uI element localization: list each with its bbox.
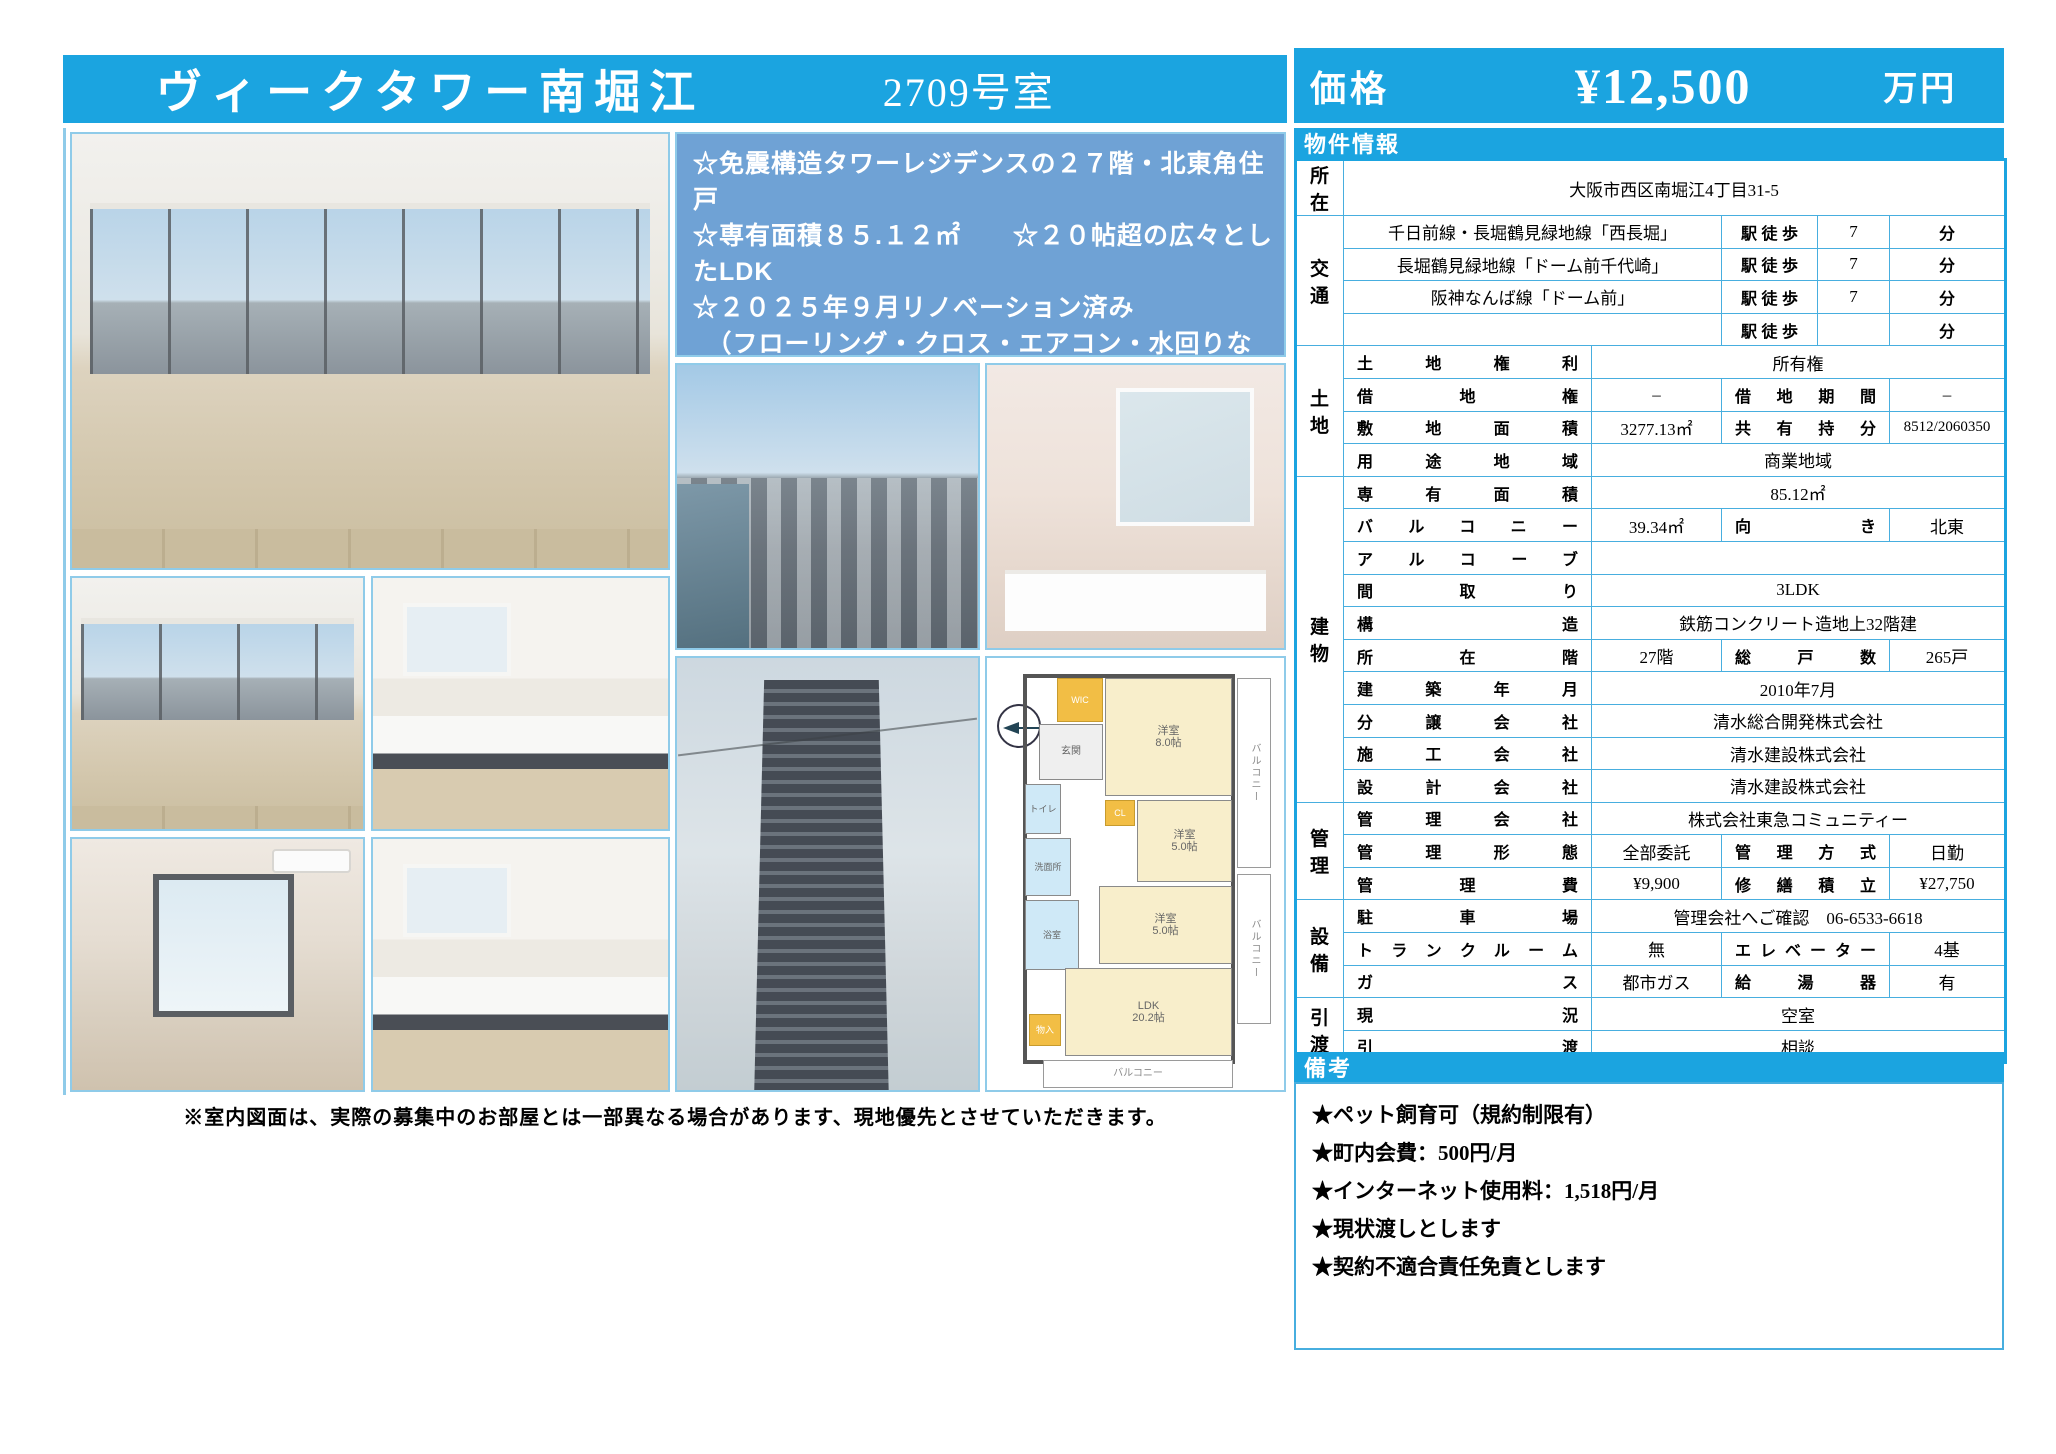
- access-minutes-2: 7: [1818, 248, 1890, 281]
- access-minutes-1: 7: [1818, 216, 1890, 249]
- access-line-3: 阪神なんば線「ドーム前」: [1344, 281, 1722, 314]
- built-date-label: 建築年月: [1344, 672, 1592, 705]
- lease-label: 借地権: [1344, 378, 1592, 411]
- feature-line: （フローリング・クロス・エアコン・水回りなど新調）: [693, 326, 1274, 357]
- repair-fund-label: 修繕積立: [1722, 867, 1890, 900]
- table-row: 引 渡 現況 空室: [1296, 998, 2006, 1031]
- designer-value: 清水建設株式会社: [1592, 770, 2006, 803]
- photo-disclaimer-caption: ※室内図面は、実際の募集中のお部屋とは一部異なる場合があります、現地優先とさせて…: [63, 1101, 1287, 1130]
- floor-plan: バルコニー バルコニー バルコニー WIC 玄関 洋室 8.0帖 トイレ CL …: [985, 656, 1286, 1092]
- price-label: 価格: [1294, 60, 1443, 112]
- table-row: 敷地面積 3277.13㎡ 共有持分 8512/2060350: [1296, 411, 2006, 444]
- access-minutes-3: 7: [1818, 281, 1890, 314]
- lease-term-label: 借地期間: [1722, 378, 1890, 411]
- property-info-header: 物件情報: [1294, 128, 2004, 158]
- current-status-label: 現況: [1344, 998, 1592, 1031]
- photo-living-room-2: [70, 576, 365, 831]
- trunk-room-label: トランクルーム: [1344, 933, 1592, 966]
- price-amount: ¥12,500: [1443, 57, 1883, 115]
- minute-unit: 分: [1890, 216, 2006, 249]
- walk-label: 駅 徒 歩: [1722, 216, 1818, 249]
- table-row: 借地権 – 借地期間 –: [1296, 378, 2006, 411]
- table-row: 管 理 管理会社 株式会社東急コミュニティー: [1296, 802, 2006, 835]
- photo-grid: ☆免震構造タワーレジデンスの２７階・北東角住戸 ☆専有面積８５.１２㎡ ☆２０帖…: [63, 128, 1287, 1095]
- table-row: ガス 都市ガス 給湯器 有: [1296, 965, 2006, 998]
- room-label: LDK: [1138, 1000, 1159, 1012]
- floor-value: 27階: [1592, 639, 1722, 672]
- table-row: 所 在 大阪市西区南堀江4丁目31-5: [1296, 160, 2006, 216]
- table-row: 阪神なんば線「ドーム前」 駅 徒 歩 7 分: [1296, 281, 2006, 314]
- remark-item: ★現状渡しとします: [1312, 1210, 1986, 1248]
- mgmt-form-value: 全部委託: [1592, 835, 1722, 868]
- water-heater-value: 有: [1890, 965, 2006, 998]
- current-status-value: 空室: [1592, 998, 2006, 1031]
- floorplan-balcony-right-2: バルコニー: [1237, 874, 1271, 1024]
- floor-label: 所在階: [1344, 639, 1592, 672]
- feature-line: ☆専有面積８５.１２㎡ ☆２０帖超の広々としたLDK: [693, 218, 1274, 290]
- floorplan-washroom: 洗面所: [1025, 838, 1071, 896]
- lease-value: –: [1592, 378, 1722, 411]
- walk-label: 駅 徒 歩: [1722, 313, 1818, 346]
- title-bar: ヴィークタワー南堀江 2709号室: [63, 55, 1287, 123]
- parking-value: 管理会社へご確認 06-6533-6618: [1592, 900, 2006, 933]
- table-row: 土 地 土地権利 所有権: [1296, 346, 2006, 379]
- room-label: 洋室: [1155, 913, 1177, 925]
- minute-unit: 分: [1890, 248, 2006, 281]
- layout-value: 3LDK: [1592, 574, 2006, 607]
- site-area-label: 敷地面積: [1344, 411, 1592, 444]
- floorplan-storage: 物入: [1029, 1014, 1061, 1046]
- gas-label: ガス: [1344, 965, 1592, 998]
- floorplan-closet: CL: [1105, 800, 1135, 826]
- room-label: 洋室: [1158, 725, 1180, 737]
- mgmt-fee-value: ¥9,900: [1592, 867, 1722, 900]
- table-row: トランクルーム 無 エレベーター 4基: [1296, 933, 2006, 966]
- floorplan-entrance: 玄関: [1039, 724, 1103, 780]
- room-size: 5.0帖: [1171, 841, 1197, 853]
- table-row: 所在階 27階 総戸数 265戸: [1296, 639, 2006, 672]
- remark-item: ★町内会費：500円/月: [1312, 1134, 1986, 1172]
- gas-value: 都市ガス: [1592, 965, 1722, 998]
- exclusive-area-label: 専有面積: [1344, 476, 1592, 509]
- table-row: 構造 鉄筋コンクリート造地上32階建: [1296, 607, 2006, 640]
- building-group-label: 建 物: [1296, 476, 1344, 802]
- land-group-label: 土 地: [1296, 346, 1344, 476]
- access-group-label: 交 通: [1296, 216, 1344, 346]
- management-group-label: 管 理: [1296, 802, 1344, 900]
- table-row: 分譲会社 清水総合開発株式会社: [1296, 704, 2006, 737]
- flyer-page: ヴィークタワー南堀江 2709号室 価格 ¥12,500 万円 ☆免震構造タワー…: [0, 0, 2056, 1454]
- minute-unit: 分: [1890, 313, 2006, 346]
- mgmt-company-value: 株式会社東急コミュニティー: [1592, 802, 2006, 835]
- photo-kitchen-2: [371, 837, 670, 1092]
- facility-group-label: 設 備: [1296, 900, 1344, 998]
- alcove-value: [1592, 541, 2006, 574]
- photo-bedroom: [70, 837, 365, 1092]
- mgmt-method-value: 日勤: [1890, 835, 2006, 868]
- built-date-value: 2010年7月: [1592, 672, 2006, 705]
- building-name: ヴィークタワー南堀江: [63, 56, 797, 122]
- table-row: 施工会社 清水建設株式会社: [1296, 737, 2006, 770]
- photo-city-view: [675, 363, 980, 650]
- zoning-label: 用途地域: [1344, 444, 1592, 477]
- price-bar: 価格 ¥12,500 万円: [1294, 48, 2004, 123]
- structure-label: 構造: [1344, 607, 1592, 640]
- balcony-value: 39.34㎡: [1592, 509, 1722, 542]
- total-units-value: 265戸: [1890, 639, 2006, 672]
- structure-value: 鉄筋コンクリート造地上32階建: [1592, 607, 2006, 640]
- walk-label: 駅 徒 歩: [1722, 281, 1818, 314]
- developer-value: 清水総合開発株式会社: [1592, 704, 2006, 737]
- site-area-value: 3277.13㎡: [1592, 411, 1722, 444]
- mgmt-fee-label: 管理費: [1344, 867, 1592, 900]
- share-value: 8512/2060350: [1890, 411, 2006, 444]
- table-row: 設 備 駐車場 管理会社へご確認 06-6533-6618: [1296, 900, 2006, 933]
- floorplan-bedroom-3: 洋室 5.0帖: [1099, 886, 1232, 964]
- table-row: 交 通 千日前線・長堀鶴見緑地線「西長堀」 駅 徒 歩 7 分: [1296, 216, 2006, 249]
- elevator-value: 4基: [1890, 933, 2006, 966]
- access-line-4: [1344, 313, 1722, 346]
- room-number: 2709号室: [797, 60, 1140, 118]
- room-size: 20.2帖: [1132, 1012, 1164, 1024]
- table-row: 建 物 専有面積 85.12㎡: [1296, 476, 2006, 509]
- water-heater-label: 給湯器: [1722, 965, 1890, 998]
- table-row: 間取り 3LDK: [1296, 574, 2006, 607]
- share-label: 共有持分: [1722, 411, 1890, 444]
- lease-term-value: –: [1890, 378, 2006, 411]
- room-size: 5.0帖: [1152, 925, 1178, 937]
- exclusive-area-value: 85.12㎡: [1592, 476, 2006, 509]
- photo-tower-exterior: [675, 656, 980, 1092]
- photo-washbasin: [985, 363, 1286, 650]
- table-row: 長堀鶴見緑地線「ドーム前千代崎」 駅 徒 歩 7 分: [1296, 248, 2006, 281]
- trunk-room-value: 無: [1592, 933, 1722, 966]
- floorplan-balcony-bottom: バルコニー: [1043, 1060, 1233, 1088]
- layout-label: 間取り: [1344, 574, 1592, 607]
- table-row: バルコニー 39.34㎡ 向き 北東: [1296, 509, 2006, 542]
- table-row: 建築年月 2010年7月: [1296, 672, 2006, 705]
- designer-label: 設計会社: [1344, 770, 1592, 803]
- feature-box: ☆免震構造タワーレジデンスの２７階・北東角住戸 ☆専有面積８５.１２㎡ ☆２０帖…: [675, 132, 1286, 357]
- room-size: 8.0帖: [1155, 737, 1181, 749]
- location-value: 大阪市西区南堀江4丁目31-5: [1344, 160, 2006, 216]
- floorplan-bedroom-1: 洋室 8.0帖: [1105, 678, 1232, 796]
- land-rights-value: 所有権: [1592, 346, 2006, 379]
- table-row: 管理形態 全部委託 管理方式 日勤: [1296, 835, 2006, 868]
- remark-item: ★契約不適合責任免責とします: [1312, 1248, 1986, 1286]
- table-row: アルコーブ: [1296, 541, 2006, 574]
- walk-label: 駅 徒 歩: [1722, 248, 1818, 281]
- remarks-header: 備考: [1294, 1052, 2004, 1082]
- total-units-label: 総戸数: [1722, 639, 1890, 672]
- feature-line: ☆２０２５年９月リノベーション済み: [693, 290, 1274, 326]
- developer-label: 分譲会社: [1344, 704, 1592, 737]
- constructor-value: 清水建設株式会社: [1592, 737, 2006, 770]
- facing-label: 向き: [1722, 509, 1890, 542]
- photo-kitchen-1: [371, 576, 670, 831]
- remark-item: ★ペット飼育可（規約制限有）: [1312, 1096, 1986, 1134]
- elevator-label: エレベーター: [1722, 933, 1890, 966]
- room-label: 洋室: [1174, 829, 1196, 841]
- access-line-2: 長堀鶴見緑地線「ドーム前千代崎」: [1344, 248, 1722, 281]
- zoning-value: 商業地域: [1592, 444, 2006, 477]
- access-minutes-4: [1818, 313, 1890, 346]
- location-group-label: 所 在: [1296, 160, 1344, 216]
- table-row: 駅 徒 歩 分: [1296, 313, 2006, 346]
- remarks-box: ★ペット飼育可（規約制限有） ★町内会費：500円/月 ★インターネット使用料：…: [1294, 1082, 2004, 1350]
- constructor-label: 施工会社: [1344, 737, 1592, 770]
- alcove-label: アルコーブ: [1344, 541, 1592, 574]
- price-unit: 万円: [1883, 61, 2004, 110]
- property-table: 所 在 大阪市西区南堀江4丁目31-5 交 通 千日前線・長堀鶴見緑地線「西長堀…: [1294, 158, 2007, 1064]
- mgmt-form-label: 管理形態: [1344, 835, 1592, 868]
- floorplan-balcony-right-1: バルコニー: [1237, 678, 1271, 868]
- photo-living-room-main: [70, 132, 670, 570]
- remark-item: ★インターネット使用料：1,518円/月: [1312, 1172, 1986, 1210]
- floorplan-bedroom-2: 洋室 5.0帖: [1137, 800, 1232, 882]
- mgmt-method-label: 管理方式: [1722, 835, 1890, 868]
- floorplan-wic: WIC: [1057, 678, 1103, 722]
- floorplan-ldk: LDK 20.2帖: [1065, 968, 1232, 1056]
- facing-value: 北東: [1890, 509, 2006, 542]
- minute-unit: 分: [1890, 281, 2006, 314]
- floorplan-toilet: トイレ: [1025, 784, 1061, 834]
- balcony-label: バルコニー: [1344, 509, 1592, 542]
- repair-fund-value: ¥27,750: [1890, 867, 2006, 900]
- table-row: 設計会社 清水建設株式会社: [1296, 770, 2006, 803]
- feature-line: ☆免震構造タワーレジデンスの２７階・北東角住戸: [693, 146, 1274, 218]
- table-row: 管理費 ¥9,900 修繕積立 ¥27,750: [1296, 867, 2006, 900]
- land-rights-label: 土地権利: [1344, 346, 1592, 379]
- parking-label: 駐車場: [1344, 900, 1592, 933]
- floorplan-bathroom: 浴室: [1025, 900, 1079, 970]
- access-line-1: 千日前線・長堀鶴見緑地線「西長堀」: [1344, 216, 1722, 249]
- mgmt-company-label: 管理会社: [1344, 802, 1592, 835]
- table-row: 用途地域 商業地域: [1296, 444, 2006, 477]
